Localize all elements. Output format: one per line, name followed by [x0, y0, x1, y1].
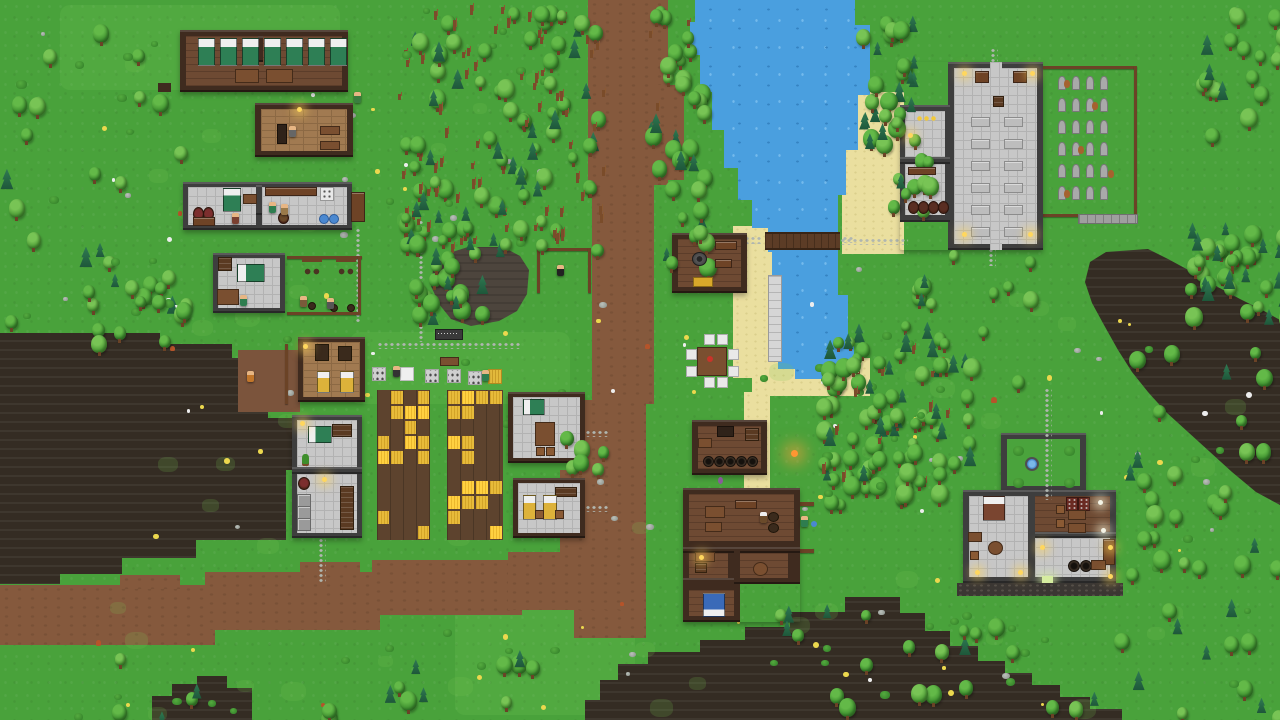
sapling-icon [560, 208, 563, 217]
villager[interactable] [300, 296, 307, 307]
grass-patch [650, 699, 674, 717]
sapling-icon [440, 158, 443, 167]
tree-icon [1167, 466, 1183, 484]
bush-icon [74, 713, 84, 720]
grass-patch [281, 682, 306, 701]
gravel-path [842, 236, 854, 243]
chair-b-icon [536, 447, 545, 456]
bush-icon [477, 662, 487, 670]
sapling-icon [602, 167, 605, 176]
rock-icon [1210, 528, 1214, 531]
flower-icon [1246, 392, 1252, 398]
tree-icon [652, 160, 667, 177]
grave-icon [1100, 120, 1108, 134]
villager[interactable] [232, 213, 239, 224]
plant-icon [302, 454, 309, 464]
grass-patch [158, 457, 178, 472]
road-horizontal-1 [0, 585, 215, 645]
road-edge-step-1 [120, 575, 180, 589]
bridge-icon [765, 232, 840, 250]
sapling-icon [596, 43, 599, 50]
table-icon [695, 552, 715, 562]
rack-icon [302, 259, 322, 276]
tree-icon [901, 188, 912, 200]
torch-icon [322, 477, 327, 482]
wheat-crop [378, 511, 389, 524]
pine-icon [873, 42, 881, 55]
well-icon[interactable] [1025, 457, 1039, 471]
tree-icon [1256, 369, 1273, 388]
wheat-crop [490, 526, 502, 539]
wheat-crop [405, 421, 416, 434]
mush-icon [620, 602, 624, 606]
sapling-icon [456, 194, 459, 203]
wheat-crop [490, 481, 502, 494]
keg-icon [1068, 560, 1080, 572]
sapling-icon [929, 402, 932, 412]
chair-icon [717, 334, 728, 345]
sapling-icon [560, 91, 563, 101]
road-edge-step-2 [300, 562, 360, 574]
grave-icon [1072, 120, 1080, 134]
torch-icon [1108, 545, 1113, 550]
grave-icon [1086, 186, 1094, 200]
sapling-icon [565, 110, 568, 116]
bed-h-icon [237, 264, 265, 282]
tree-icon [536, 239, 547, 252]
bush-icon [114, 694, 122, 701]
tree-icon [574, 15, 589, 32]
wheat-crop [378, 451, 389, 464]
sapling-icon [553, 230, 556, 237]
tree-icon [93, 24, 109, 42]
bush-icon [443, 629, 453, 637]
wardrobe-red-icon [1066, 497, 1078, 511]
tree-icon [1194, 256, 1205, 268]
tree-icon [543, 53, 559, 70]
flower-icon [581, 626, 584, 629]
table-icon [235, 69, 259, 83]
bush-icon [1041, 637, 1049, 643]
torch-icon [699, 555, 704, 560]
villager[interactable] [269, 202, 276, 213]
wardrobe-red-icon [1078, 497, 1090, 511]
bed-v-icon [286, 38, 303, 66]
chair-b-icon [555, 510, 564, 519]
sapling-icon [540, 37, 543, 44]
bush-icon [386, 198, 394, 204]
press-icon [277, 124, 287, 144]
pine-icon [431, 247, 442, 265]
bush-icon [23, 313, 31, 319]
lamp-icon [1098, 500, 1103, 505]
torch-icon [1018, 570, 1023, 575]
pine-icon [461, 206, 470, 221]
wheat-crop [391, 406, 402, 419]
tree-icon [518, 189, 530, 202]
tree-icon [446, 34, 461, 51]
rock-icon [450, 215, 458, 221]
tree-icon [132, 49, 145, 63]
tree-icon [27, 232, 42, 248]
villager[interactable] [327, 298, 334, 309]
slab-icon [971, 205, 990, 215]
wallstub-icon [158, 83, 171, 92]
tree-icon [891, 117, 902, 130]
table-icon [1068, 523, 1086, 533]
villager[interactable] [247, 371, 254, 382]
sapling-icon [427, 222, 430, 232]
table-icon [697, 347, 727, 376]
pine-icon [1202, 645, 1211, 660]
tree-icon [650, 9, 664, 24]
wheat-crop [418, 526, 429, 539]
grave-icon [1086, 164, 1094, 178]
wheat-crop [448, 511, 460, 524]
shelf-icon [695, 563, 707, 573]
tree-icon [1179, 557, 1190, 570]
chair-icon [728, 366, 739, 377]
tree-icon [949, 250, 959, 262]
tree-icon [551, 36, 565, 52]
grass-patch [192, 320, 214, 336]
bush-icon [111, 258, 120, 265]
bush-icon [423, 8, 430, 14]
pine-icon [1132, 450, 1143, 468]
flower-icon [1047, 375, 1052, 380]
tree-icon [847, 432, 859, 446]
sapling-icon [842, 472, 845, 482]
tree-icon [1270, 560, 1280, 577]
sapling-icon [445, 128, 448, 138]
flower-icon [477, 675, 482, 680]
slab-icon [1004, 205, 1023, 215]
tree-icon [496, 656, 513, 675]
tree-icon [12, 96, 27, 113]
bush-icon [117, 94, 127, 102]
flower-icon [920, 509, 925, 514]
press-icon [717, 426, 734, 437]
bush-icon [926, 623, 934, 630]
torch-icon [962, 232, 967, 237]
tile-w-icon [400, 367, 414, 381]
tree-icon [1234, 555, 1251, 574]
counter-icon [908, 167, 936, 175]
tree-icon [29, 97, 46, 116]
table-icon [535, 422, 555, 446]
shelf-icon [340, 486, 354, 530]
keg-icon [725, 456, 736, 467]
bush-icon [1191, 456, 1199, 463]
sapling-icon [472, 179, 475, 189]
villager[interactable] [393, 366, 400, 377]
pot-icon [768, 512, 779, 522]
bush-icon [1216, 447, 1224, 454]
sapling-icon [649, 31, 652, 38]
tree-icon [660, 57, 676, 75]
grave-icon [1100, 164, 1108, 178]
tree-icon [1006, 645, 1020, 660]
counter-icon [715, 259, 732, 268]
sapling-icon [505, 225, 508, 232]
bush-icon [499, 28, 508, 35]
tree-icon [933, 357, 948, 374]
pine-icon [931, 403, 941, 419]
tree-icon [591, 244, 603, 258]
wheat-crop [476, 481, 488, 494]
table-icon [320, 141, 340, 150]
villager[interactable] [289, 126, 296, 137]
counter-icon [715, 241, 737, 250]
tree-icon [1246, 70, 1260, 85]
tree-icon [400, 691, 418, 711]
bush-icon [1006, 678, 1016, 686]
wheat-crop [476, 496, 488, 509]
sapling-icon [476, 141, 479, 149]
tree-icon [1256, 443, 1271, 460]
rock-icon [599, 302, 607, 308]
shrub-o-icon [1108, 170, 1114, 178]
gravel-path [990, 48, 998, 62]
sapling-icon [501, 7, 504, 15]
bush-icon [414, 225, 422, 231]
stove-icon [320, 187, 334, 201]
tree-icon [1185, 283, 1197, 296]
tree-icon [893, 21, 910, 40]
tree-icon [1244, 225, 1261, 244]
tree-icon [497, 79, 514, 99]
flower-icon [371, 108, 375, 112]
pot-icon [347, 304, 355, 312]
rock-icon [125, 193, 131, 197]
wheat-crop [462, 481, 474, 494]
tree-icon [474, 187, 490, 205]
tree-icon [1276, 27, 1280, 46]
wheat-crop [418, 406, 429, 419]
tree-icon [152, 94, 169, 113]
tree-icon [922, 177, 939, 196]
sapling-icon [593, 124, 596, 130]
pine-icon [489, 232, 497, 245]
barrel-icon [298, 477, 310, 490]
tree-icon [430, 176, 441, 188]
flower-icon [311, 93, 315, 97]
gravel-path [1044, 388, 1052, 500]
torch-icon [1028, 232, 1033, 237]
chair-b-icon [546, 447, 555, 456]
bushv-icon [1064, 446, 1075, 456]
tree-icon [1224, 33, 1237, 48]
grass-patch [125, 632, 148, 649]
bush-icon [1145, 346, 1153, 352]
grass-patch [448, 677, 473, 696]
bush-icon [505, 648, 513, 654]
tree-icon [115, 176, 128, 190]
road-horizontal-2 [205, 572, 380, 630]
bush-icon [1244, 608, 1252, 614]
table-icon [217, 289, 239, 305]
building-stable[interactable] [298, 337, 365, 402]
rock-icon [611, 516, 618, 522]
tree-icon [1046, 700, 1059, 715]
villager[interactable] [354, 92, 361, 103]
sapling-icon [471, 163, 474, 169]
tree-icon [1162, 603, 1176, 619]
door-light-icon[interactable] [1042, 576, 1053, 583]
flower-icon [126, 703, 130, 707]
tree-icon [873, 356, 886, 370]
torch-icon [1030, 71, 1035, 76]
sapling-icon [533, 83, 536, 90]
torch-icon [908, 133, 913, 138]
slab-icon [971, 227, 990, 237]
grass-patch [1147, 627, 1165, 640]
slab-icon [971, 117, 990, 127]
slab-icon [1004, 139, 1023, 149]
wheat-crop [462, 391, 474, 404]
villager[interactable] [557, 265, 564, 276]
chair-b-icon [1056, 505, 1065, 514]
flower-icon [404, 163, 409, 168]
tree-icon [9, 199, 26, 218]
grave-icon [1072, 164, 1080, 178]
tree-icon [1069, 701, 1084, 718]
tree-icon [675, 76, 690, 93]
sapling-icon [421, 55, 424, 64]
tree-icon [557, 10, 567, 21]
pine-icon [898, 388, 907, 402]
rock-icon [629, 652, 636, 657]
villager[interactable] [281, 204, 288, 215]
wheat-crop [448, 496, 460, 509]
pine-icon [79, 247, 92, 268]
bush-icon [950, 618, 959, 626]
wood-fence [588, 248, 591, 293]
tree-icon [410, 136, 426, 154]
tree-icon [585, 182, 597, 195]
sapling-icon [556, 93, 559, 101]
grass-patch [689, 677, 706, 690]
tree-icon [1114, 633, 1130, 651]
tree-icon [568, 152, 579, 164]
bush-icon [385, 645, 394, 652]
tree-icon [1185, 307, 1203, 327]
basin-icon [329, 214, 339, 224]
bush-icon [172, 698, 182, 706]
shelf-icon [218, 257, 232, 271]
grass-patch [1058, 317, 1076, 330]
darkroad-icon [957, 583, 1123, 596]
tree-icon [1237, 680, 1253, 698]
tree-icon [970, 627, 982, 641]
tree-icon [583, 138, 597, 153]
wood-fence [1043, 66, 1137, 69]
wheat-crop [462, 436, 474, 449]
bed-vb-icon [703, 593, 725, 617]
sapling-icon [931, 371, 934, 377]
tree-icon [91, 335, 108, 354]
tile-h-icon [488, 369, 502, 384]
flower-icon [403, 187, 407, 191]
wheat-crop [418, 451, 429, 464]
tree-icon [856, 29, 871, 46]
tree-icon [115, 653, 126, 666]
villager[interactable] [760, 512, 767, 523]
sapling-icon [507, 18, 510, 28]
mush-icon [96, 640, 102, 646]
tree-icon [21, 128, 34, 142]
torch-icon [297, 107, 302, 112]
keg-icon [747, 456, 758, 467]
sapling-icon [525, 120, 528, 127]
tree-icon [1237, 41, 1251, 57]
pine-icon [111, 274, 120, 288]
tree-icon [988, 618, 1005, 637]
wheat-crop [405, 406, 416, 419]
shrub-o-icon [1092, 102, 1098, 110]
road-horizontal-4 [508, 552, 628, 610]
tree-icon [846, 357, 861, 374]
bush-icon [402, 51, 412, 59]
gravel-path [988, 248, 996, 266]
tree-icon [926, 298, 937, 310]
pier-icon [768, 275, 782, 362]
tree-icon [868, 76, 884, 94]
tree-icon [1276, 228, 1280, 247]
grave-icon [1086, 76, 1094, 90]
tree-icon [1146, 505, 1164, 525]
wood-fence [800, 502, 814, 506]
wheat-crop [448, 436, 460, 449]
grass-patch [896, 571, 919, 588]
table-icon [968, 532, 982, 542]
gravel-path [585, 505, 610, 512]
wheat-crop [418, 436, 429, 449]
gravel-path [377, 342, 522, 349]
tree-icon [1250, 347, 1261, 359]
sapling-icon [656, 103, 659, 111]
flower-icon [935, 578, 940, 583]
flower-icon [683, 343, 687, 347]
pine-icon [451, 69, 463, 89]
sapling-icon [473, 238, 476, 244]
tree-icon [978, 326, 989, 338]
bush-icon [445, 200, 453, 207]
villager[interactable] [482, 370, 489, 381]
sapling-icon [398, 94, 401, 100]
sapling-icon [541, 70, 544, 76]
fire-icon [791, 450, 798, 457]
bush-icon [16, 80, 26, 88]
item-icon [707, 356, 713, 362]
game-world-map[interactable] [0, 0, 1280, 720]
villager[interactable] [801, 516, 808, 527]
tree-icon [43, 49, 57, 65]
wheat-crop [405, 436, 416, 449]
sapling-icon [453, 20, 456, 31]
sapling-icon [854, 388, 857, 397]
rock-icon [1074, 348, 1081, 353]
flower-icon [153, 534, 159, 540]
tree-icon [536, 215, 547, 227]
bush-icon [1183, 535, 1193, 543]
chair-icon [717, 377, 728, 388]
villager[interactable] [240, 295, 247, 306]
millstone-icon [692, 252, 707, 266]
tree-icon [423, 294, 440, 313]
tree-icon [503, 102, 519, 120]
tree-icon [152, 295, 165, 310]
